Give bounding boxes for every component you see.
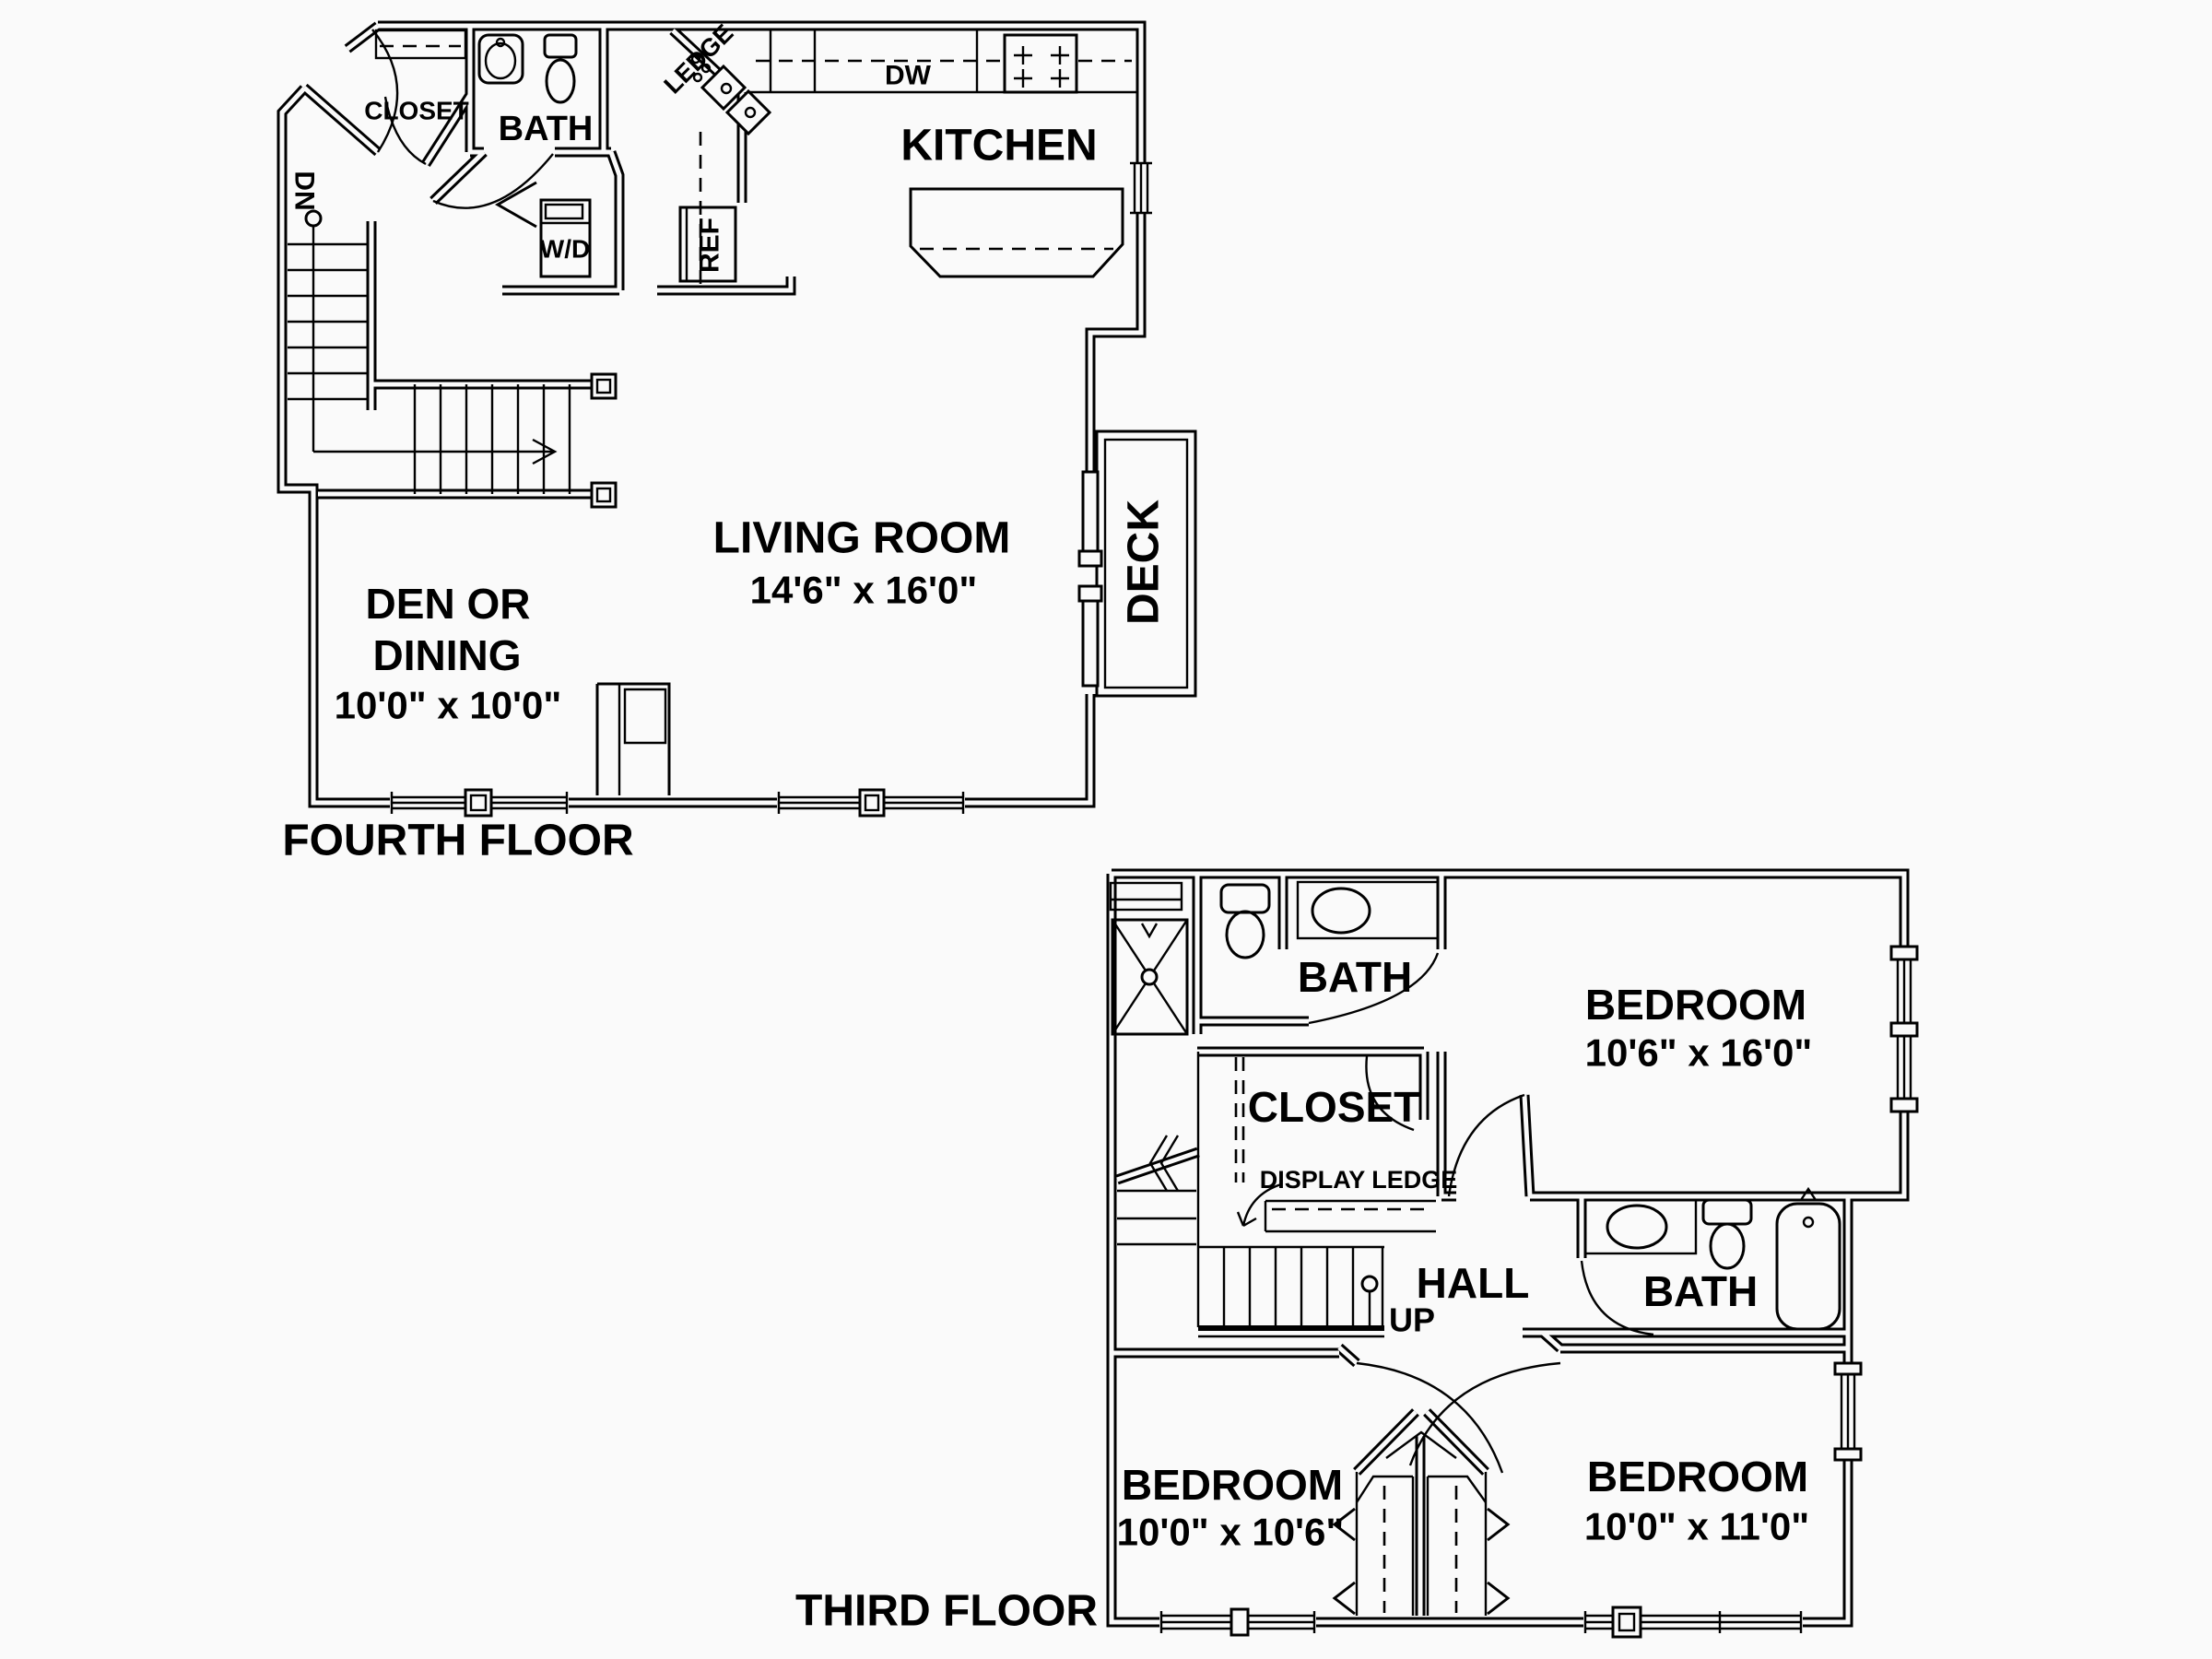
label-wd: W/D [540,235,590,264]
window [1583,1607,1803,1637]
sink-symbol [479,35,523,83]
label-dn: DN [289,171,320,210]
label-bedroom2: BEDROOM [1122,1461,1343,1509]
stove-symbol [1005,35,1077,92]
label-den-line2: DINING [373,631,522,679]
window [390,790,569,816]
label-up: UP [1389,1301,1435,1339]
kitchen-island [911,189,1123,276]
label-bedroom3: BEDROOM [1587,1453,1808,1500]
label-bath: BATH [499,110,594,148]
toilet-symbol [1703,1200,1751,1268]
door-arc [1449,1095,1524,1196]
label-deck: DECK [1120,500,1169,625]
label-display-ledge: DISPLAY LEDGE [1260,1166,1458,1194]
label-bedroom1: BEDROOM [1585,981,1806,1029]
shower-symbol [1111,883,1187,1034]
label-closet: CLOSET [364,97,469,125]
fourth-floor-title: FOURTH FLOOR [282,817,633,865]
label-bedroom2-dims: 10'0" x 10'6" [1117,1511,1345,1554]
closet-shelf [376,30,465,58]
label-living-dims: 14'6" x 16'0" [750,569,978,612]
third-floor-title: THIRD FLOOR [795,1587,1098,1636]
label-bedroom1-dims: 10'6" x 16'0" [1585,1031,1813,1075]
label-closet3: CLOSET [1248,1083,1420,1131]
label-living-room: LIVING ROOM [713,514,1011,563]
fireplace-chase [597,684,669,795]
label-bedroom3-dims: 10'0" x 11'0" [1584,1505,1809,1548]
window [1891,947,1917,1112]
sink-symbol [1585,1200,1696,1253]
window [1159,1609,1316,1635]
toilet-symbol [545,35,576,102]
label-hall: HALL [1417,1259,1530,1307]
fourth-floor-plan: CLOSET BATH DN W/D LEDGE DW REF KITCHEN … [282,19,1195,865]
toilet-symbol [1221,885,1269,958]
floor-plan-page: CLOSET BATH DN W/D LEDGE DW REF KITCHEN … [0,0,2212,1659]
sink-symbol [1298,882,1438,938]
label-dw: DW [885,61,932,91]
tub-symbol [1777,1189,1840,1329]
third-floor-plan: BATH BEDROOM 10'6" x 16'0" CLOSET DISPLA… [795,874,1917,1637]
window [777,790,965,816]
window [1835,1363,1861,1460]
label-bath-lower: BATH [1643,1267,1758,1315]
label-den-dims: 10'0" x 10'0" [335,684,562,727]
label-bath-upper: BATH [1298,953,1412,1001]
label-ref: REF [695,218,725,273]
closet-rods [1236,1057,1243,1182]
floor-plan-canvas: CLOSET BATH DN W/D LEDGE DW REF KITCHEN … [0,0,2212,1659]
label-den-line1: DEN OR [366,580,531,628]
label-kitchen: KITCHEN [900,122,1097,171]
window [1130,163,1152,213]
